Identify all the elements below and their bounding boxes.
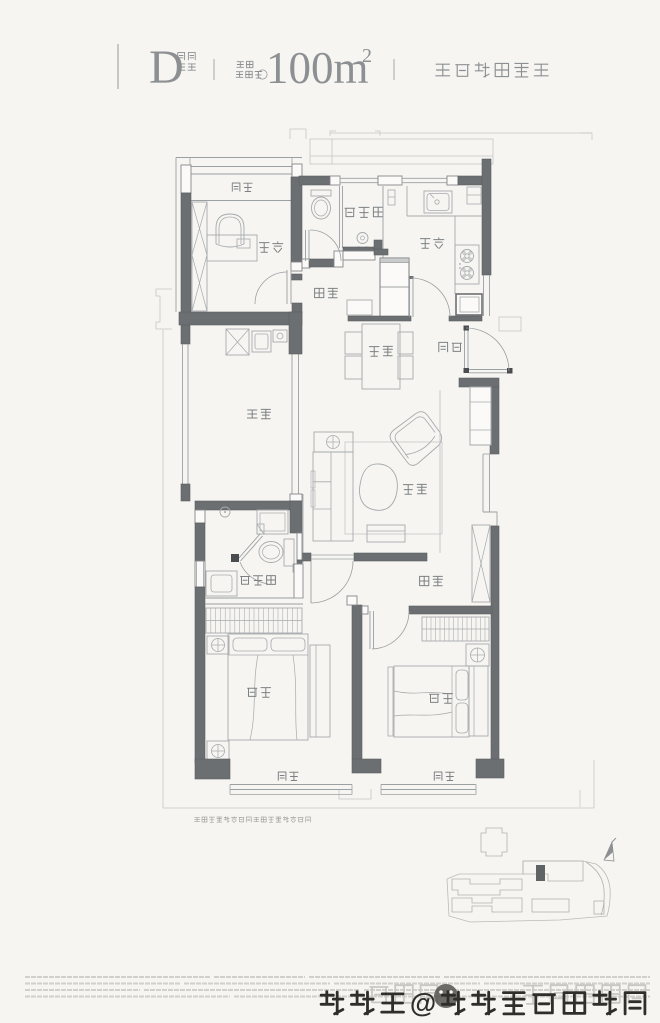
svg-text:D: D — [149, 41, 184, 94]
svg-text:100m: 100m — [266, 43, 369, 93]
svg-text:@: @ — [410, 988, 436, 1018]
svg-text:2: 2 — [362, 45, 372, 67]
